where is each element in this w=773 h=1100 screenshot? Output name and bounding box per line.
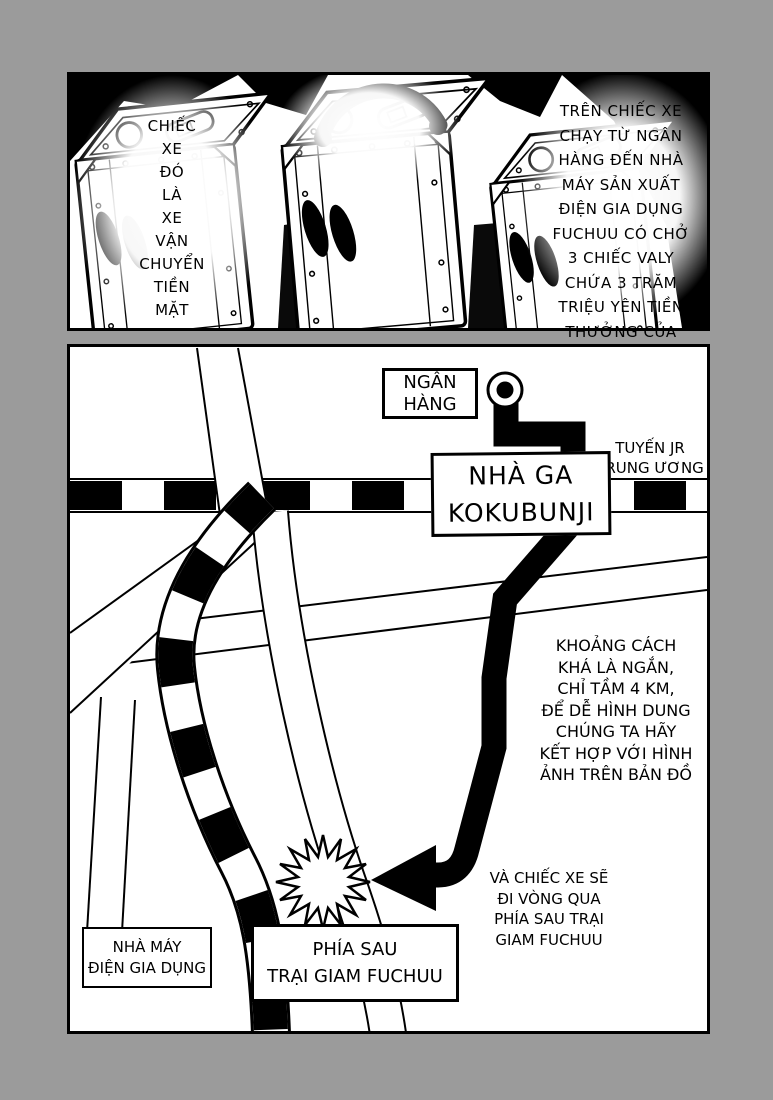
caption-narration-left: CHIẾC XE ĐÓ LÀ XE VẬN CHUYỂN TIỀN MẶT [102, 115, 242, 322]
factory-label: NHÀ MÁY ĐIỆN GIA DỤNG [88, 937, 206, 979]
road [122, 700, 135, 932]
station-label: NHÀ GA KOKUBUNJI [447, 456, 594, 532]
panel-money-cases: CHIẾC XE ĐÓ LÀ XE VẬN CHUYỂN TIỀN MẶT TR… [67, 72, 710, 331]
distance-note: KHOẢNG CÁCH KHÁ LÀ NGẮN, CHỈ TẦM 4 KM, Đ… [506, 635, 726, 786]
route-arrow-icon [371, 845, 436, 911]
destination-burst-icon [276, 835, 370, 929]
bank-label: NGÂN HÀNG [403, 372, 456, 416]
bank-location-marker-dot [497, 382, 514, 399]
factory-label-box: NHÀ MÁY ĐIỆN GIA DỤNG [82, 927, 212, 988]
caption-narration-right: TRÊN CHIẾC XE CHẠY TỪ NGÂN HÀNG ĐẾN NHÀ … [540, 99, 702, 369]
bank-label-box: NGÂN HÀNG [382, 368, 478, 419]
manga-page: CHIẾC XE ĐÓ LÀ XE VẬN CHUYỂN TIỀN MẶT TR… [0, 0, 773, 1100]
station-label-box: NHÀ GA KOKUBUNJI [431, 451, 612, 537]
route-note: VÀ CHIẾC XE SẼ ĐI VÒNG QUA PHÍA SAU TRẠI… [466, 868, 632, 950]
road [87, 697, 101, 932]
destination-label: PHÍA SAU TRẠI GIAM FUCHUU [267, 936, 443, 990]
destination-label-box: PHÍA SAU TRẠI GIAM FUCHUU [251, 924, 459, 1002]
panel-route-map: NGÂN HÀNG TUYẾN JR TRUNG ƯƠNG NHÀ GA KOK… [67, 344, 710, 1034]
